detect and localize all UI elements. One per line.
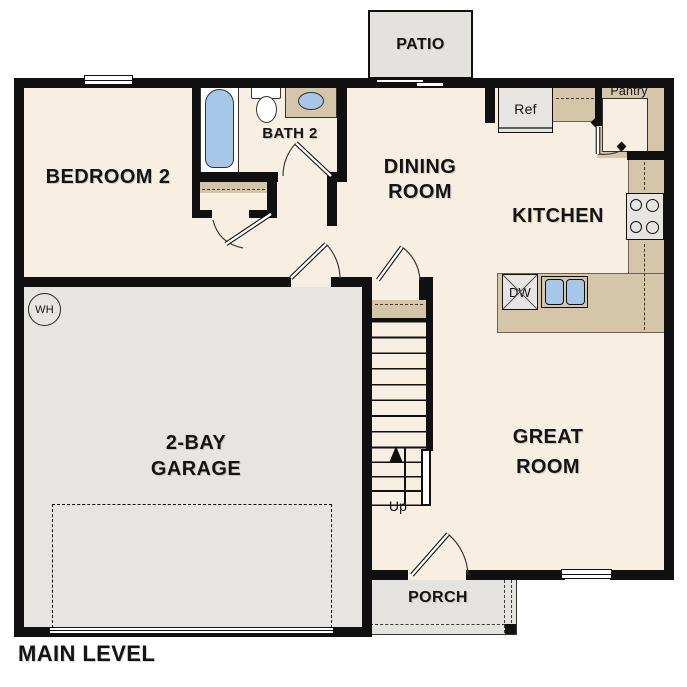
wall: [610, 570, 674, 580]
bath2-label: BATH 2: [240, 125, 340, 142]
bathtub: [205, 89, 234, 168]
counter-beside-ref: [553, 85, 597, 122]
wall: [485, 78, 495, 123]
sink-basin: [566, 279, 585, 305]
wall: [466, 570, 565, 580]
stair-up-label: Up: [376, 498, 420, 514]
stair-closet-rod-dashed: [375, 304, 423, 305]
window: [561, 569, 612, 579]
wall: [627, 151, 674, 160]
porch-label: PORCH: [388, 589, 488, 607]
wall: [192, 84, 200, 174]
doorway: [408, 570, 466, 580]
closet-rod-dashed: [202, 189, 265, 190]
dishwasher: DW: [502, 274, 538, 310]
stair-closet-shelf: [372, 300, 426, 320]
stair-up-arrow: [389, 446, 403, 463]
counter-shelf-dashed: [556, 98, 594, 99]
sliding-patio-door: [416, 82, 444, 87]
pantry-interior: [602, 98, 648, 152]
wall: [362, 277, 372, 637]
garage-label: 2-BAY GARAGE: [113, 430, 279, 482]
doorway: [291, 277, 331, 287]
stair-railing: [421, 449, 431, 506]
stove-burner: [630, 221, 642, 233]
stair-treads-upper: [372, 321, 426, 448]
counter-center-dashed: [644, 244, 645, 330]
pantry-label: Pantry: [598, 84, 660, 98]
kitchen-label: KITCHEN: [497, 205, 619, 228]
toilet-bowl: [256, 96, 277, 123]
wall: [14, 78, 24, 637]
wall: [426, 277, 433, 451]
stair-divider: [404, 447, 406, 505]
great-room-label: GREAT ROOM: [478, 422, 618, 482]
bedroom2-label: BEDROOM 2: [28, 166, 188, 189]
dishwasher-label: DW: [508, 285, 532, 300]
refrigerator: Ref: [498, 85, 553, 133]
sink-basin: [545, 279, 564, 305]
floor-plan: Ref DW WH: [0, 0, 687, 687]
patio-label: PATIO: [368, 36, 473, 54]
dining-room-label: DINING ROOM: [354, 155, 486, 205]
wall: [192, 210, 212, 218]
doorway: [212, 210, 249, 218]
porch-post: [505, 624, 516, 634]
water-heater: WH: [28, 293, 61, 326]
water-heater-label: WH: [35, 304, 54, 316]
window: [84, 75, 133, 85]
wall: [419, 277, 433, 300]
wall: [249, 210, 277, 218]
stove-burner: [630, 199, 642, 211]
stove-burner: [646, 199, 659, 212]
bath-sink: [298, 92, 324, 110]
doorway: [278, 172, 327, 182]
wall: [327, 172, 337, 226]
stove-burner: [646, 221, 659, 234]
counter-center-dashed: [644, 162, 645, 190]
wall: [14, 277, 291, 287]
garage-overhead-door: [49, 627, 334, 634]
refrigerator-label: Ref: [514, 101, 536, 117]
porch-roofline-dashed: [370, 624, 505, 625]
plan-title: MAIN LEVEL: [18, 641, 258, 667]
garage-bay-dashed: [52, 504, 332, 628]
